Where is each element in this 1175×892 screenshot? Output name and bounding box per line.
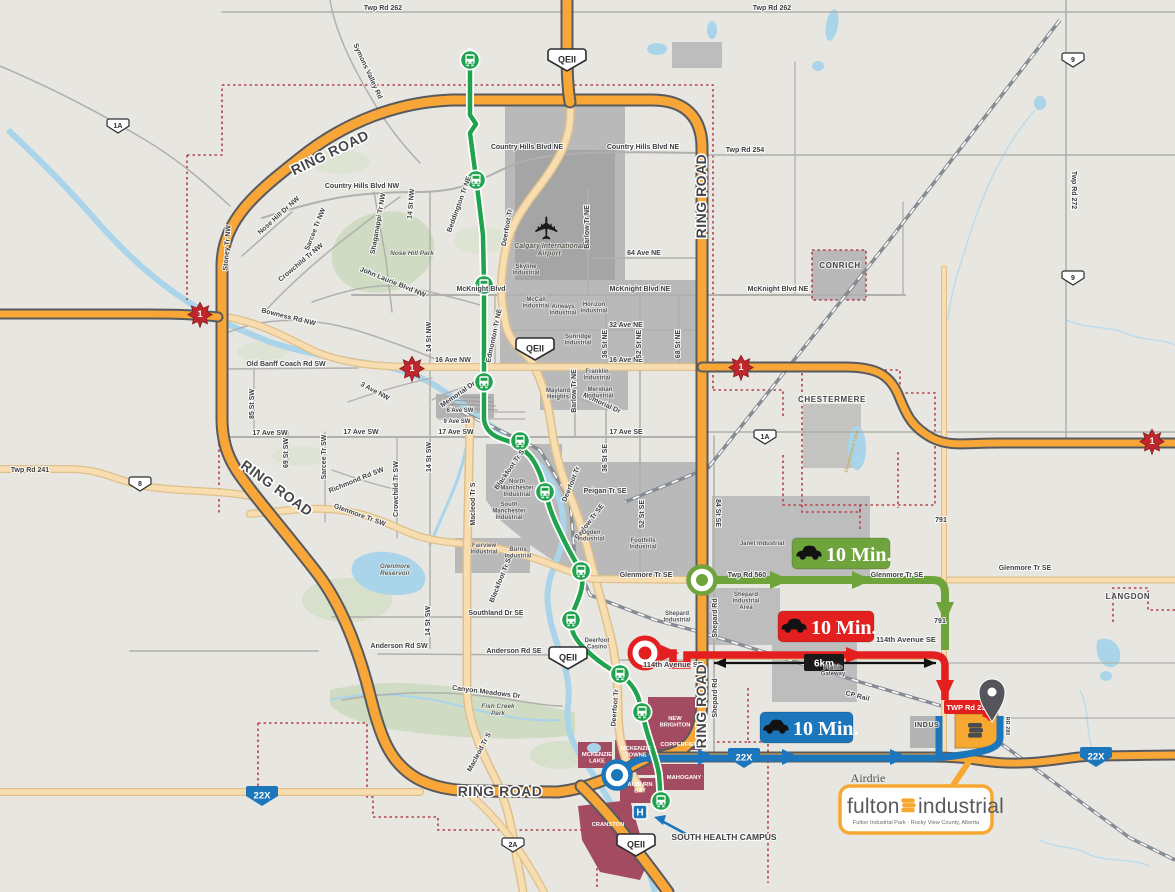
label-84-st-se: 84 St SE bbox=[714, 499, 721, 527]
svg-text:QEII: QEII bbox=[559, 653, 577, 663]
label-17-ave-se: 17 Ave SE bbox=[609, 429, 643, 436]
label-langdon: LANGDON bbox=[1106, 592, 1151, 601]
label-rr-280: RR 280 bbox=[1004, 717, 1010, 736]
label-conrich: CONRICH bbox=[819, 261, 861, 270]
south-health-campus-label: SOUTH HEALTH CAMPUS bbox=[671, 832, 776, 842]
svg-text:QEII: QEII bbox=[627, 840, 645, 850]
label-southland-dr: Southland Dr SE bbox=[468, 610, 524, 617]
svg-text:8: 8 bbox=[138, 481, 142, 488]
label-6-ave-sw: 6 Ave SW bbox=[447, 408, 474, 414]
label-anderson-rd-se: Anderson Rd SE bbox=[486, 648, 542, 655]
label-twp-rd-262: Twp Rd 262 bbox=[753, 5, 791, 12]
label-9-ave-sw: 9 Ave SW bbox=[444, 419, 471, 425]
label-airways: AirwaysIndustrial bbox=[549, 304, 576, 316]
label-twp-rd-272: Twp Rd 272 bbox=[1070, 171, 1077, 209]
svg-text:QEII: QEII bbox=[526, 344, 544, 354]
label-114th-ave-se: 114th Avenue SE bbox=[876, 635, 936, 644]
label-mayland: MaylandHeights bbox=[546, 388, 570, 400]
label-shepard-rd: Shepard Rd bbox=[712, 678, 719, 717]
svg-text:22X: 22X bbox=[1088, 752, 1106, 763]
label-horizon: HorizonIndustrial bbox=[580, 302, 607, 314]
label-glenmore-tr-se: Glenmore Tr SE bbox=[871, 572, 924, 579]
label-macleod-tr-s: Macleod Tr S bbox=[470, 482, 477, 526]
label-791: 791 bbox=[935, 517, 947, 524]
svg-text:1: 1 bbox=[197, 309, 202, 319]
svg-text:1: 1 bbox=[1149, 436, 1154, 446]
blue-time-label: 10 Min. bbox=[793, 718, 859, 740]
label-64-ave-ne: 64 Ave NE bbox=[627, 250, 661, 257]
label-32-ave-ne: 32 Ave NE bbox=[609, 322, 643, 329]
label-country-hills-ne: Country Hills Blvd NE bbox=[491, 144, 564, 151]
label-17-ave-sw: 17 Ave SW bbox=[343, 429, 379, 436]
ring-road-label: RING ROAD bbox=[693, 154, 709, 239]
label-69-st-sw: 69 St SW bbox=[283, 438, 290, 468]
svg-text:22X: 22X bbox=[736, 753, 754, 764]
label-copperfield: COPPERFIELD bbox=[660, 742, 701, 748]
label-36-st-ne: 36 St NE bbox=[602, 329, 609, 358]
label-deerfoot-casino: DeerfootCasino bbox=[585, 638, 610, 650]
blue-time-badge: 10 Min. bbox=[760, 712, 859, 743]
label-85-st-sw: 85 St SW bbox=[249, 389, 256, 419]
label-peigan-tr-se: Peigan Tr SE bbox=[584, 488, 627, 495]
label-52-st-ne: 52 St NE bbox=[636, 329, 643, 358]
label-791: 791 bbox=[934, 618, 946, 625]
green-route-start-marker bbox=[689, 567, 716, 594]
green-time-badge: 10 Min. bbox=[792, 538, 892, 569]
label-anderson-rd-sw: Anderson Rd SW bbox=[370, 643, 428, 650]
label-country-hills-ne: Country Hills Blvd NE bbox=[607, 144, 680, 151]
label-14-st-sw: 14 St SW bbox=[425, 606, 432, 636]
svg-text:9: 9 bbox=[1071, 275, 1075, 282]
label-17-ave-sw: 17 Ave SW bbox=[252, 430, 288, 437]
label-mcknight-blvd-ne: McKnight Blvd NE bbox=[748, 286, 809, 293]
svg-text:1A: 1A bbox=[761, 434, 770, 441]
fulton-industrial-map: 6km TWP Rd 230 QEII QEII QEII QEII 1 1 1… bbox=[0, 0, 1175, 892]
label-franklin: FranklinIndustrial bbox=[583, 369, 610, 381]
label-sunridge: SunridgeIndustrial bbox=[564, 334, 591, 346]
label-foothills: FoothillsIndustrial bbox=[629, 538, 656, 550]
logo-tagline: Fulton Industrial Park - Rocky View Coun… bbox=[853, 820, 980, 826]
svg-text:2A: 2A bbox=[509, 842, 518, 849]
label-barlow-tr-ne: Barlow Tr NE bbox=[584, 205, 591, 249]
red-time-badge: 10 Min. bbox=[778, 611, 877, 642]
svg-text:QEII: QEII bbox=[558, 55, 576, 65]
label-mcknight-blvd-ne: McKnight Blvd NE bbox=[610, 286, 671, 293]
label-glenmore-tr-se: Glenmore Tr SE bbox=[999, 565, 1052, 572]
label-twp-rd-560: Twp Rd 560 bbox=[728, 572, 766, 579]
label-twp-rd-262: Twp Rd 262 bbox=[364, 5, 402, 12]
label-chestermere: CHESTERMERE bbox=[798, 395, 866, 404]
logo-word-fulton: fulton bbox=[847, 795, 900, 818]
airplane-icon: ✈ bbox=[529, 215, 565, 242]
label-skyline: SkylineIndustrial bbox=[512, 264, 539, 276]
label-14-st-sw: 14 St SW bbox=[426, 442, 433, 472]
svg-text:22X: 22X bbox=[254, 791, 272, 802]
label-barlow-tr-ne: Barlow Tr NE bbox=[571, 369, 578, 413]
logo-pallet-icon bbox=[901, 798, 915, 812]
svg-text:9: 9 bbox=[1071, 57, 1075, 64]
fulton-industrial-logo: fulton industrial Fulton Industrial Park… bbox=[840, 786, 1004, 833]
red-time-label: 10 Min. bbox=[811, 617, 877, 639]
label-janet: Janet Industrial bbox=[740, 541, 785, 547]
label-52-st-se: 52 St SE bbox=[639, 500, 646, 528]
label-fairview: FairviewIndustrial bbox=[470, 543, 497, 555]
label-twp-rd-254: Twp Rd 254 bbox=[726, 147, 764, 154]
label-country-hills-nw: Country Hills Blvd NW bbox=[325, 183, 400, 190]
label-sarcee-tr-sw: Sarcee Tr SW bbox=[321, 434, 328, 479]
label-nose-hill-park: Nose Hill Park bbox=[390, 250, 434, 257]
label-meridian: MeridianIndustrial bbox=[586, 387, 613, 399]
label-mahogany: MAHOGANY bbox=[667, 775, 702, 781]
ring-road-label: RING ROAD bbox=[693, 664, 709, 749]
svg-text:1: 1 bbox=[738, 362, 743, 372]
label-36-st-se: 36 St SE bbox=[602, 444, 609, 472]
label-prairie-gateway: PrairieGateway bbox=[821, 665, 846, 677]
label-glenmore-reservoir: GlenmoreReservoir bbox=[380, 563, 411, 577]
label-airdrie: Airdrie bbox=[851, 771, 886, 785]
svg-text:1A: 1A bbox=[114, 123, 123, 130]
label-cranston: CRANSTON bbox=[592, 822, 625, 828]
label-mcknight-blvd: McKnight Blvd bbox=[457, 286, 506, 293]
site-industrial-icon bbox=[968, 723, 983, 738]
green-time-label: 10 Min. bbox=[826, 544, 892, 566]
label-16-ave-nw: 16 Ave NW bbox=[435, 357, 471, 364]
label-twp-rd-241: Twp Rd 241 bbox=[11, 467, 49, 474]
label-68-st-ne: 68 St NE bbox=[675, 329, 682, 358]
label-glenmore-tr-se: Glenmore Tr SE bbox=[620, 572, 673, 579]
label-crowchild-tr-sw: Crowchild Tr SW bbox=[393, 461, 400, 517]
label-shepard-industrial: ShepardIndustrial bbox=[663, 611, 690, 623]
label-14-st-nw: 14 St NW bbox=[426, 321, 433, 352]
label-17-ave-sw: 17 Ave SW bbox=[438, 429, 474, 436]
label-shepard-rd: Shepard Rd bbox=[712, 598, 719, 637]
svg-text:1: 1 bbox=[409, 363, 414, 373]
logo-word-industrial: industrial bbox=[918, 795, 1004, 818]
label-old-banff-coach: Old Banff Coach Rd SW bbox=[246, 361, 326, 368]
ring-road-label: RING ROAD bbox=[458, 783, 543, 799]
blue-route-start-marker bbox=[604, 762, 631, 789]
label-mckenzie-towne: MCKENZIETOWNE bbox=[621, 746, 651, 758]
label-indus: INDUS bbox=[915, 722, 940, 729]
hospital-letter: H bbox=[636, 808, 643, 819]
